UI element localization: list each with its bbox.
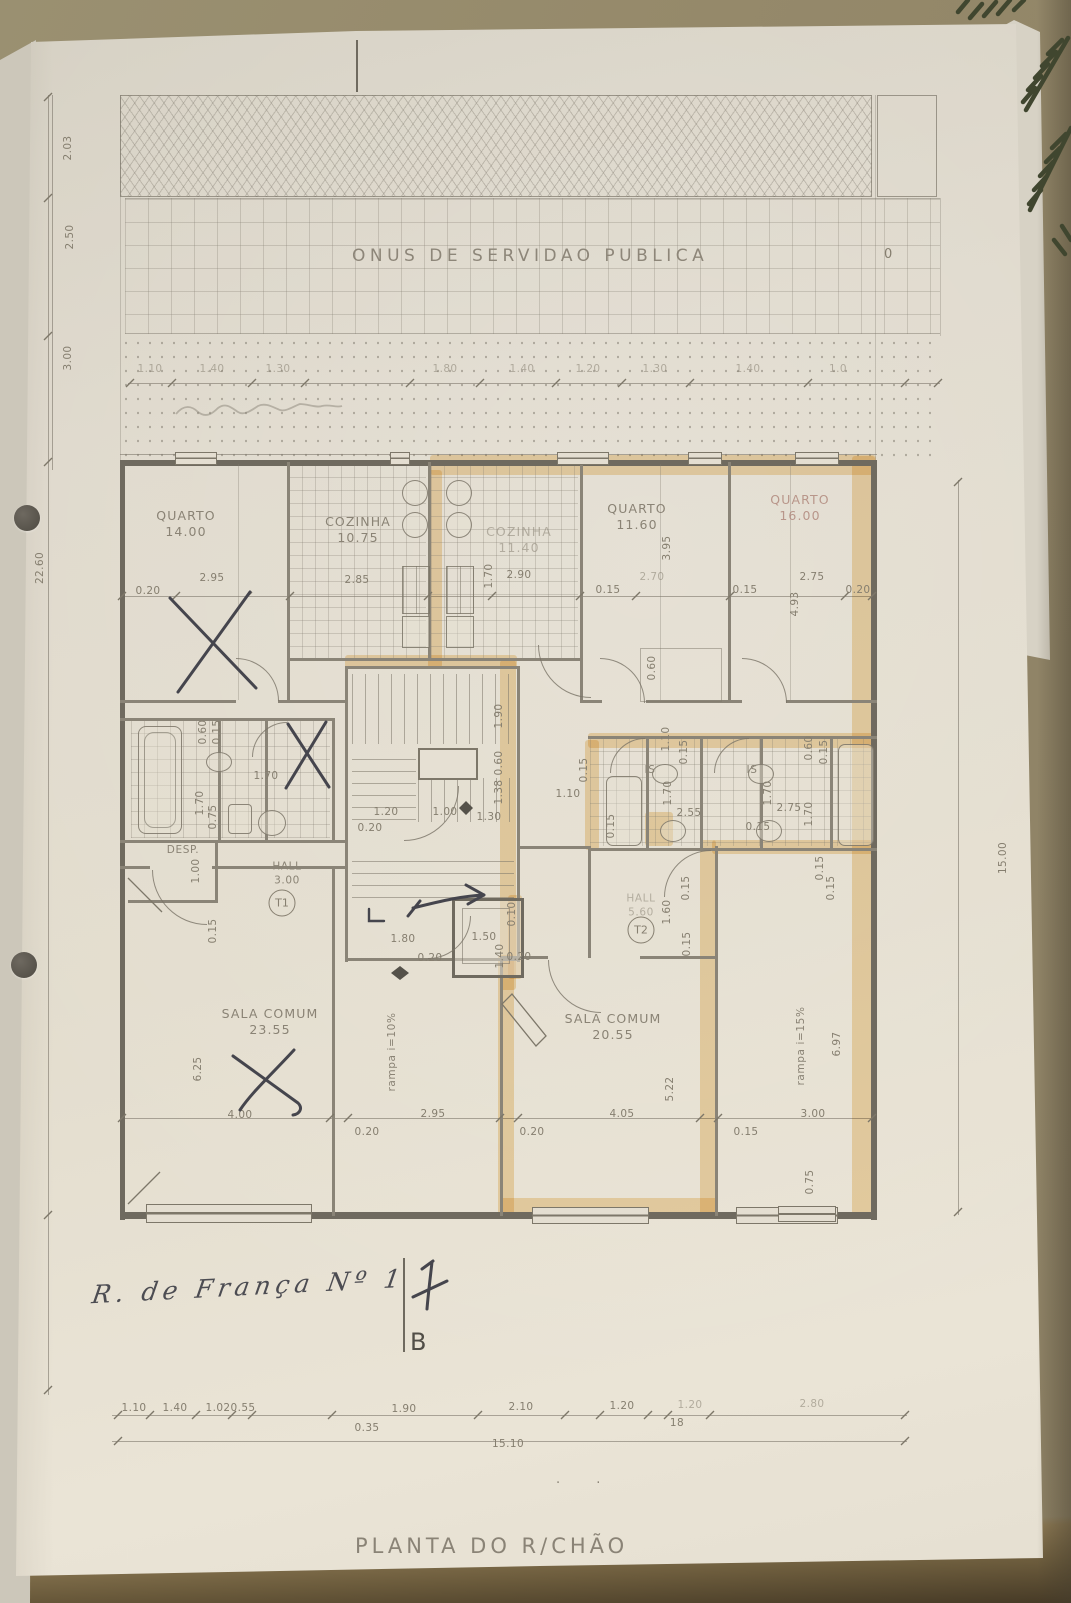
- plant-branches-icon: [0, 0, 1071, 1603]
- hole-punch: [11, 952, 37, 978]
- hole-punch: [14, 505, 40, 531]
- floor-plan-photo: ONUS DE SERVIDAO PUBLICA 0: [0, 0, 1071, 1603]
